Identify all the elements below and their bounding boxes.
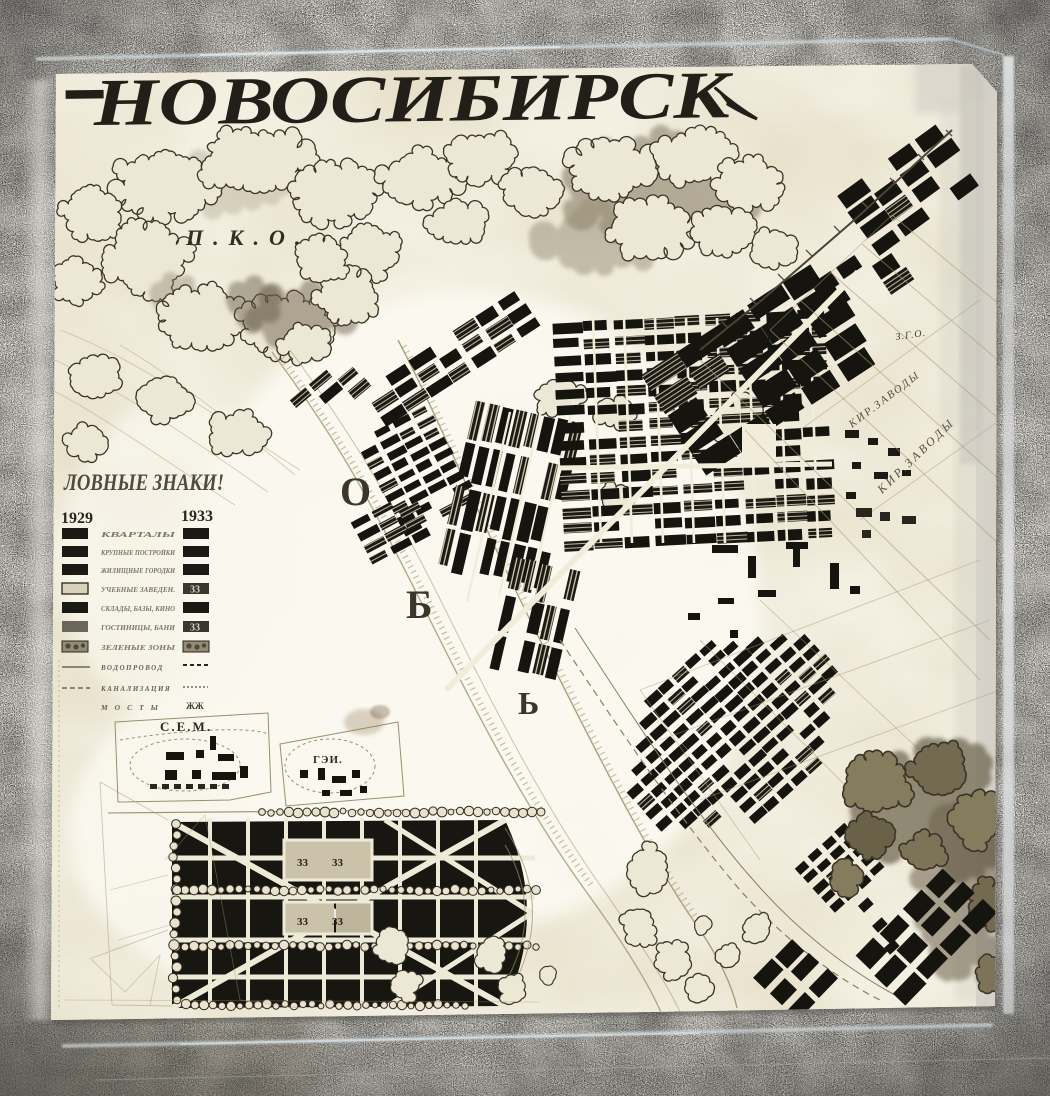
svg-text:ГЭИ.: ГЭИ. — [313, 754, 343, 766]
svg-text:ЛОВНЫЕ ЗНАКИ!: ЛОВНЫЕ ЗНАКИ! — [63, 470, 224, 495]
svg-text:1929: 1929 — [61, 510, 93, 527]
svg-text:КРУПНЫЕ ПОСТРОЙКИ: КРУПНЫЕ ПОСТРОЙКИ — [100, 549, 175, 557]
svg-text:ЗЕЛЕНЫЕ ЗОНЫ: ЗЕЛЕНЫЕ ЗОНЫ — [100, 644, 176, 652]
svg-text:33: 33 — [297, 916, 309, 928]
svg-text:П.К.О.: П.К.О. — [185, 225, 310, 250]
svg-text:ГОСТИНИЦЫ, БАНИ: ГОСТИНИЦЫ, БАНИ — [100, 624, 176, 632]
svg-text:Б: Б — [406, 582, 432, 627]
svg-text:Ь: Ь — [518, 685, 539, 721]
svg-text:О: О — [340, 469, 371, 514]
svg-text:33: 33 — [190, 585, 200, 596]
svg-text:ЖИЛИЩНЫЕ ГОРОДКИ: ЖИЛИЩНЫЕ ГОРОДКИ — [100, 567, 175, 575]
svg-text:МОСТЫ: МОСТЫ — [100, 703, 165, 712]
svg-text:КВАРТАЛЫ: КВАРТАЛЫ — [99, 531, 175, 539]
svg-text:1933: 1933 — [181, 508, 213, 525]
svg-text:С.Е.М.: С.Е.М. — [160, 719, 212, 734]
svg-text:33: 33 — [297, 857, 309, 869]
svg-text:УЧЕБНЫЕ ЗАВЕДЕН.: УЧЕБНЫЕ ЗАВЕДЕН. — [101, 586, 175, 594]
svg-text:33: 33 — [332, 857, 344, 869]
svg-text:33: 33 — [332, 916, 344, 928]
svg-text:ВОДОПРОВОД: ВОДОПРОВОД — [100, 664, 164, 672]
svg-text:СКЛАДЫ, БАЗЫ, КИНО: СКЛАДЫ, БАЗЫ, КИНО — [101, 605, 175, 613]
svg-text:КАНАЛИЗАЦИЯ: КАНАЛИЗАЦИЯ — [100, 685, 171, 693]
svg-text:33: 33 — [190, 623, 200, 634]
svg-text:ЖЖ: ЖЖ — [186, 701, 204, 711]
